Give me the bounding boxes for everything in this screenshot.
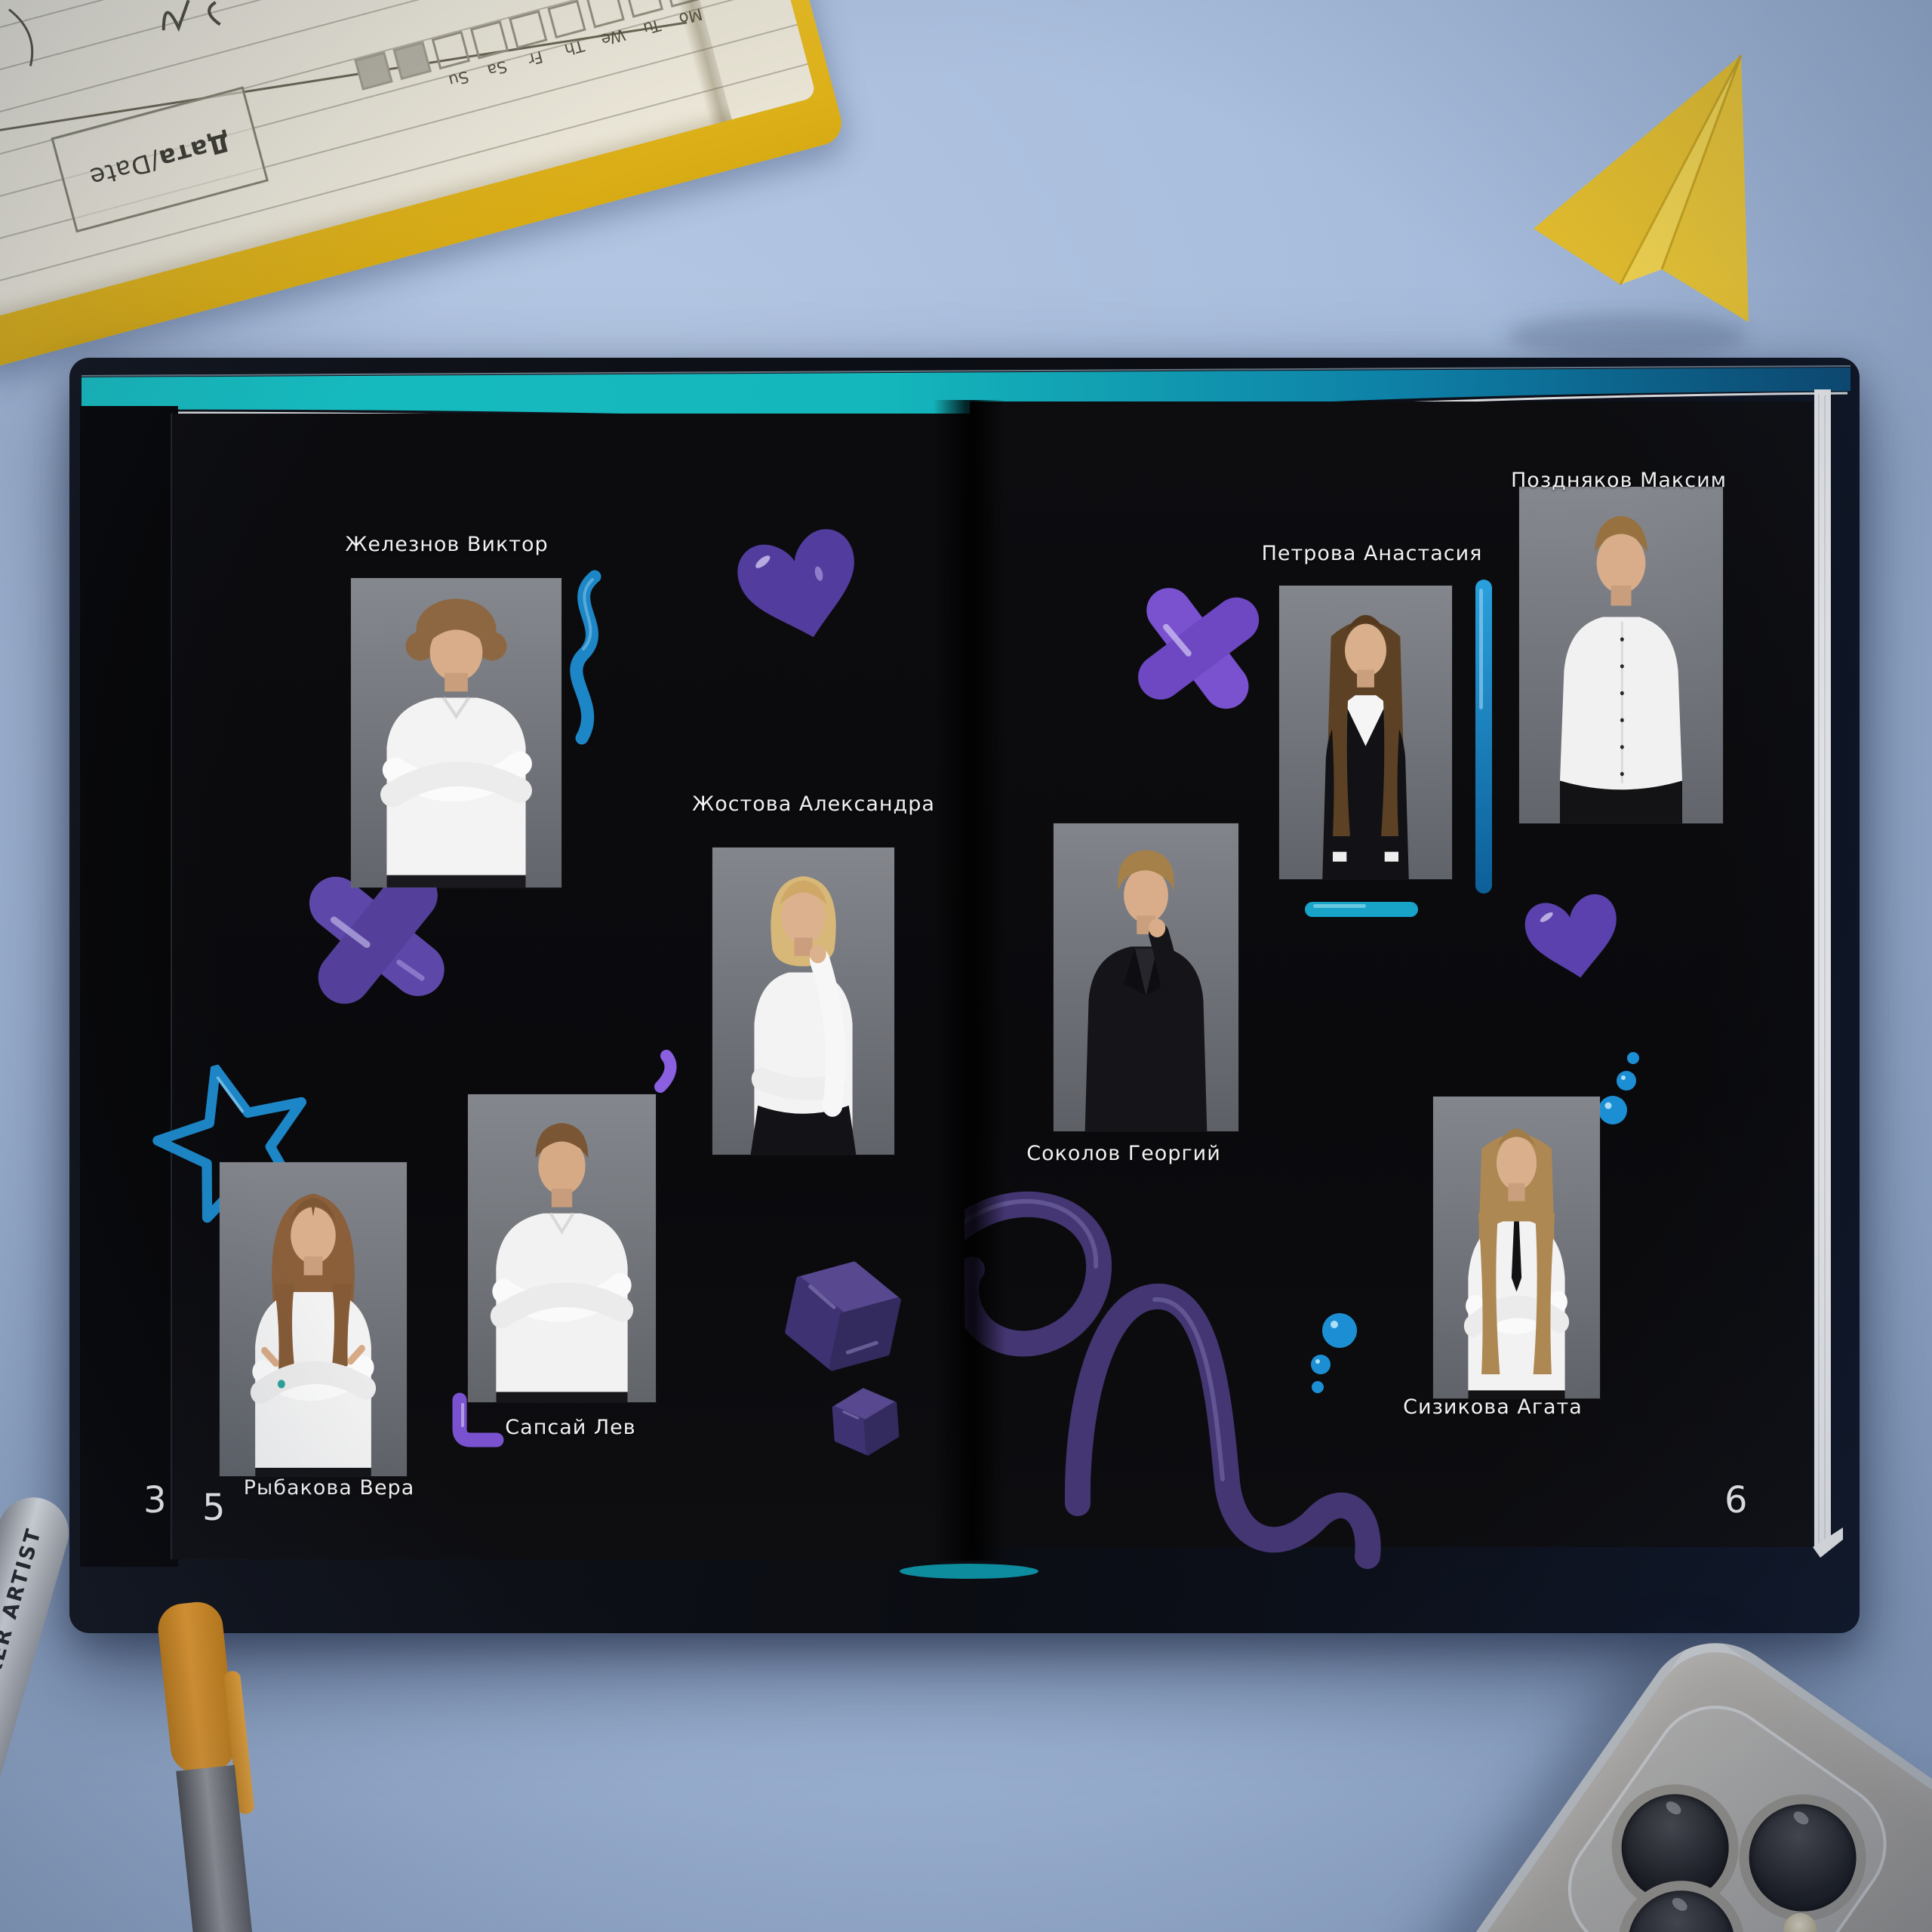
smartphone [1081, 1615, 1932, 1932]
student-photo-rybakova [220, 1162, 407, 1476]
student-photo-sapsay [468, 1094, 656, 1402]
camera-module [1543, 1681, 1912, 1932]
weekday-cell: Fr [509, 10, 553, 70]
notebook: Дата/Date Mo Tu We Th Fr Sa Su Сб Вс [0, 0, 847, 371]
checkbox-icon [547, 0, 586, 38]
student-name: Сизикова Агата [1403, 1395, 1583, 1419]
weekday-cell [392, 42, 437, 102]
checkbox-icon [470, 20, 509, 59]
student-photo-sokolov [1054, 823, 1238, 1131]
paper-airplane [1475, 34, 1830, 370]
weekday-label: Fr [526, 48, 545, 69]
checkbox-icon [432, 31, 470, 69]
student-name: Жостова Александра [692, 792, 935, 816]
checkbox-icon [586, 0, 624, 28]
student-name: Сапсай Лев [505, 1416, 635, 1439]
camera-lens-icon [1715, 1770, 1891, 1932]
marker-pen [155, 1600, 263, 1932]
student-photo-sizikova [1433, 1097, 1600, 1398]
student-photo-pozdnyakov [1519, 487, 1723, 823]
page-number-underlay: 3 [143, 1479, 167, 1521]
student-name: Железнов Виктор [345, 533, 548, 556]
notebook-date-label: Дата/Date [86, 127, 234, 192]
weekday-cell: Th [547, 0, 592, 60]
student-name: Петрова Анастасия [1262, 542, 1483, 565]
student-name: Рыбакова Вера [244, 1476, 414, 1500]
checkbox-icon [509, 10, 547, 48]
page-number-right: 6 [1724, 1479, 1748, 1521]
student-photo-zheleznov [351, 578, 561, 888]
weekday-cell: Sa [470, 20, 515, 81]
desk-scene: Дата/Date Mo Tu We Th Fr Sa Su Сб Вс [0, 0, 1932, 1932]
fineliner-pen: SKETCHMARKER ARTIST [0, 1489, 77, 1932]
student-name: Соколов Георгий [1026, 1142, 1221, 1165]
page-number-left: 5 [202, 1487, 226, 1529]
pen-brand-text: SKETCHMARKER ARTIST [0, 1524, 46, 1837]
weekday-cell: We [586, 0, 630, 50]
student-photo-petrova [1279, 586, 1452, 879]
student-photo-zhostova [712, 848, 894, 1155]
student-name: Поздняков Максим [1511, 469, 1727, 492]
underlying-page [80, 406, 178, 1567]
checkbox-filled-icon [392, 42, 431, 80]
weekday-cell: Su [432, 31, 476, 91]
pen-body: SKETCHMARKER ARTIST [0, 1489, 77, 1932]
